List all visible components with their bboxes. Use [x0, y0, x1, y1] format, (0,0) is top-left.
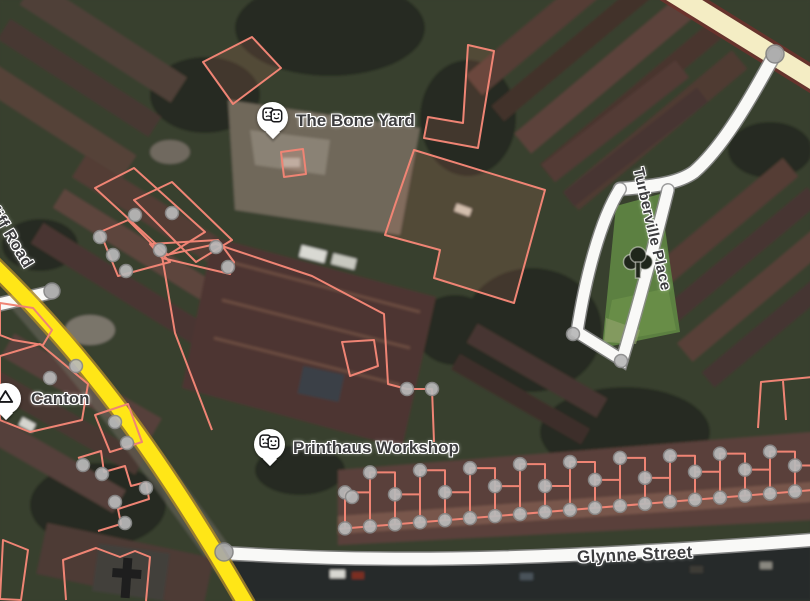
vertex-handle[interactable]	[346, 491, 359, 504]
vertex-handle[interactable]	[539, 480, 552, 493]
vertex-handle[interactable]	[140, 482, 153, 495]
vertex-handle[interactable]	[94, 231, 107, 244]
vertex-handle[interactable]	[639, 497, 652, 510]
vertex-handle[interactable]	[107, 249, 120, 262]
vertex-handle[interactable]	[514, 508, 527, 521]
junction-node-handle[interactable]	[766, 45, 784, 63]
vertex-handle[interactable]	[789, 459, 802, 472]
vertex-handle[interactable]	[714, 491, 727, 504]
vertex-handle[interactable]	[389, 488, 402, 501]
vertex-handle[interactable]	[589, 501, 602, 514]
vertex-handle[interactable]	[614, 499, 627, 512]
vertex-handle[interactable]	[414, 516, 427, 529]
vertex-handle[interactable]	[77, 459, 90, 472]
theater-masks-icon	[259, 434, 280, 455]
building-outline[interactable]	[281, 149, 306, 177]
vertex-handle[interactable]	[664, 449, 677, 462]
vertex-handle[interactable]	[564, 455, 577, 468]
vertex-handle[interactable]	[489, 480, 502, 493]
vertex-handle[interactable]	[121, 437, 134, 450]
vertex-handle[interactable]	[222, 261, 235, 274]
satellite-imagery	[0, 0, 810, 601]
vertex-handle[interactable]	[44, 372, 57, 385]
vertex-handle[interactable]	[364, 520, 377, 533]
vertex-handle[interactable]	[154, 244, 167, 257]
vertex-handle[interactable]	[789, 485, 802, 498]
vertex-handle[interactable]	[166, 207, 179, 220]
vertex-handle[interactable]	[464, 462, 477, 475]
vertex-handle[interactable]	[564, 503, 577, 516]
triangle-icon	[0, 389, 14, 409]
theater-masks-icon	[262, 107, 283, 128]
vertex-handle[interactable]	[689, 465, 702, 478]
poi-pin-bone-yard[interactable]	[257, 102, 288, 133]
vertex-handle[interactable]	[109, 416, 122, 429]
vertex-handle[interactable]	[489, 510, 502, 523]
vertex-handle[interactable]	[120, 265, 133, 278]
vertex-handle[interactable]	[439, 486, 452, 499]
junction-node-handle[interactable]	[44, 283, 60, 299]
vertex-handle[interactable]	[664, 495, 677, 508]
poi-pin-printhaus[interactable]	[254, 429, 285, 460]
vertex-handle[interactable]	[339, 522, 352, 535]
vertex-handle[interactable]	[389, 518, 402, 531]
vertex-handle[interactable]	[614, 451, 627, 464]
vertex-handle[interactable]	[739, 463, 752, 476]
vertex-handle[interactable]	[119, 517, 132, 530]
vertex-handle[interactable]	[589, 473, 602, 486]
vertex-handle[interactable]	[764, 487, 777, 500]
vertex-handle[interactable]	[96, 468, 109, 481]
vertex-handle[interactable]	[70, 360, 83, 373]
vertex-handle[interactable]	[210, 241, 223, 254]
vertex-handle[interactable]	[689, 493, 702, 506]
junction-node-handle[interactable]	[215, 543, 233, 561]
vertex-handle[interactable]	[714, 447, 727, 460]
vertex-handle[interactable]	[464, 512, 477, 525]
vertex-handle[interactable]	[539, 506, 552, 519]
vertex-handle[interactable]	[739, 489, 752, 502]
map-canvas[interactable]: Cardiff Road Turberville Place Glynne St…	[0, 0, 810, 601]
vertex-handle[interactable]	[764, 445, 777, 458]
vertex-handle[interactable]	[364, 466, 377, 479]
vertex-handle[interactable]	[639, 471, 652, 484]
vertex-handle[interactable]	[414, 464, 427, 477]
vertex-handle[interactable]	[439, 514, 452, 527]
vertex-handle[interactable]	[426, 383, 439, 396]
vertex-handle[interactable]	[615, 355, 628, 368]
vertex-handle[interactable]	[129, 209, 142, 222]
vertex-handle[interactable]	[401, 383, 414, 396]
vertex-handle[interactable]	[567, 328, 580, 341]
vertex-handle[interactable]	[514, 458, 527, 471]
vertex-handle[interactable]	[109, 496, 122, 509]
